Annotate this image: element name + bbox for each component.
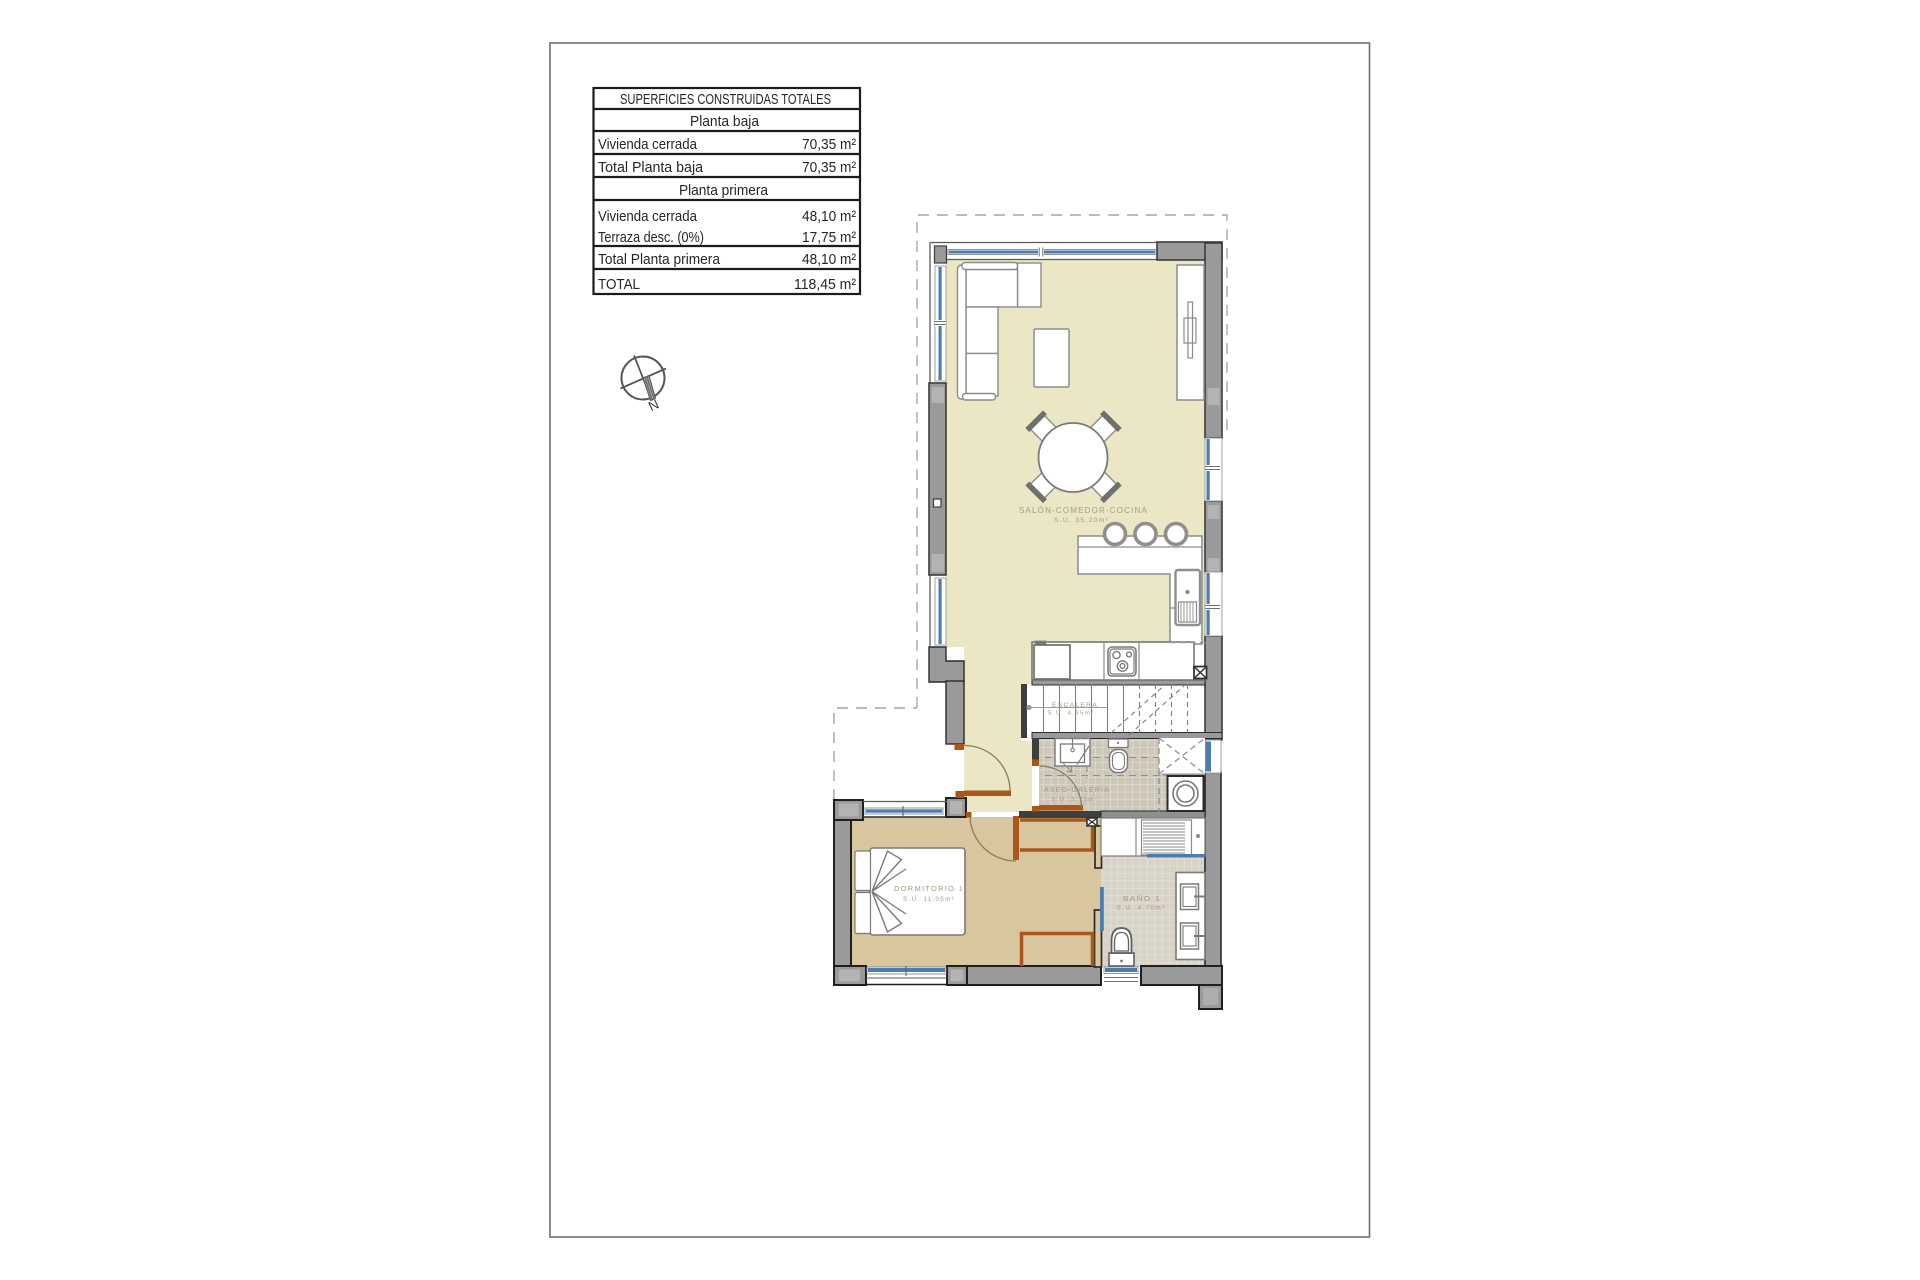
svg-text:Planta baja: Planta baja — [690, 113, 759, 130]
svg-text:DORMITORIO 1: DORMITORIO 1 — [894, 884, 964, 893]
svg-text:S.U. 35.20m²: S.U. 35.20m² — [1054, 517, 1109, 524]
svg-text:Terraza desc. (0%): Terraza desc. (0%) — [598, 229, 704, 246]
svg-text:SALÓN-COMEDOR-COCINA: SALÓN-COMEDOR-COCINA — [1019, 505, 1148, 515]
svg-text:48,10 m²: 48,10 m² — [802, 251, 856, 268]
svg-text:Planta primera: Planta primera — [679, 182, 768, 199]
svg-text:S.U. 4.65m²: S.U. 4.65m² — [1048, 711, 1095, 717]
svg-text:SUPERFICIES CONSTRUIDAS TOTALE: SUPERFICIES CONSTRUIDAS TOTALES — [620, 91, 831, 108]
svg-text:BAÑO 1: BAÑO 1 — [1123, 894, 1161, 903]
svg-text:S.U. 3.75m²: S.U. 3.75m² — [1051, 797, 1098, 803]
svg-text:Total Planta baja: Total Planta baja — [598, 159, 704, 176]
svg-text:70,35 m²: 70,35 m² — [802, 136, 856, 153]
svg-text:118,45 m²: 118,45 m² — [794, 276, 856, 293]
svg-text:Vivienda cerrada: Vivienda cerrada — [598, 208, 697, 225]
svg-text:S.U. 4.70m²: S.U. 4.70m² — [1117, 906, 1166, 912]
svg-text:17,75 m²: 17,75 m² — [802, 229, 856, 246]
svg-text:Total Planta primera: Total Planta primera — [598, 251, 720, 268]
svg-text:S.U. 11.05m²: S.U. 11.05m² — [903, 897, 955, 903]
svg-text:70,35 m²: 70,35 m² — [802, 159, 856, 176]
svg-text:ASEO-GALERÍA: ASEO-GALERÍA — [1044, 785, 1110, 794]
svg-text:TOTAL: TOTAL — [598, 276, 640, 293]
svg-text:ESCALERA: ESCALERA — [1052, 702, 1098, 709]
svg-text:Vivienda cerrada: Vivienda cerrada — [598, 136, 697, 153]
svg-text:48,10 m²: 48,10 m² — [802, 208, 856, 225]
